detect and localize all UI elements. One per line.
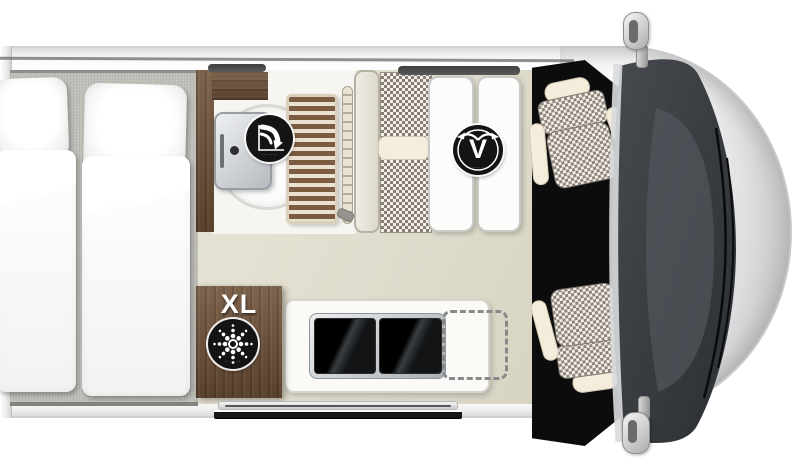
fridge-size-label: XL	[196, 289, 282, 320]
windshield-glass	[596, 48, 796, 450]
swivel-bath-badge: ·······	[246, 115, 293, 162]
swivel-badge-caption: ·······	[246, 153, 293, 157]
bench-armrest	[378, 136, 430, 160]
wall-window-strip-1	[208, 64, 266, 72]
cooktop-glass-left	[314, 318, 376, 374]
bed-duvet-right	[82, 156, 190, 396]
duvet-fold	[0, 150, 76, 222]
partition-panel	[354, 70, 380, 233]
mirror-glass	[628, 420, 637, 443]
cooktop-glass-right	[379, 318, 442, 374]
wall-window-strip-2	[398, 66, 520, 75]
fridge-badge-caption: ·······	[208, 360, 258, 364]
bed-pillow-left	[0, 77, 69, 162]
vario-badge-letter: V	[453, 136, 503, 163]
shower-grate	[286, 94, 338, 224]
side-mirror-top	[623, 12, 649, 50]
bed-duvet-left	[0, 150, 76, 392]
campervan-floorplan: ······· V ······· XL	[0, 0, 796, 466]
rail-groove	[225, 405, 451, 407]
optional-area-outline	[442, 310, 508, 380]
vario-seating-badge: V ·······	[453, 125, 503, 175]
sliding-door-rail-lower	[214, 410, 462, 419]
mirror-glass	[629, 20, 638, 43]
cooktop-unit	[309, 313, 446, 379]
fridge-badge: ·······	[208, 319, 258, 369]
fridge-cabinet: XL ·······	[196, 286, 282, 398]
duvet-fold	[82, 156, 190, 228]
faucet-arm	[220, 134, 224, 168]
bathroom-cabinet	[212, 72, 268, 100]
accordion-door	[342, 86, 353, 224]
faucet-icon	[230, 146, 239, 155]
sliding-door-rail-upper	[218, 401, 458, 410]
side-mirror-bottom	[622, 412, 650, 454]
vario-badge-caption: ·······	[453, 166, 503, 170]
